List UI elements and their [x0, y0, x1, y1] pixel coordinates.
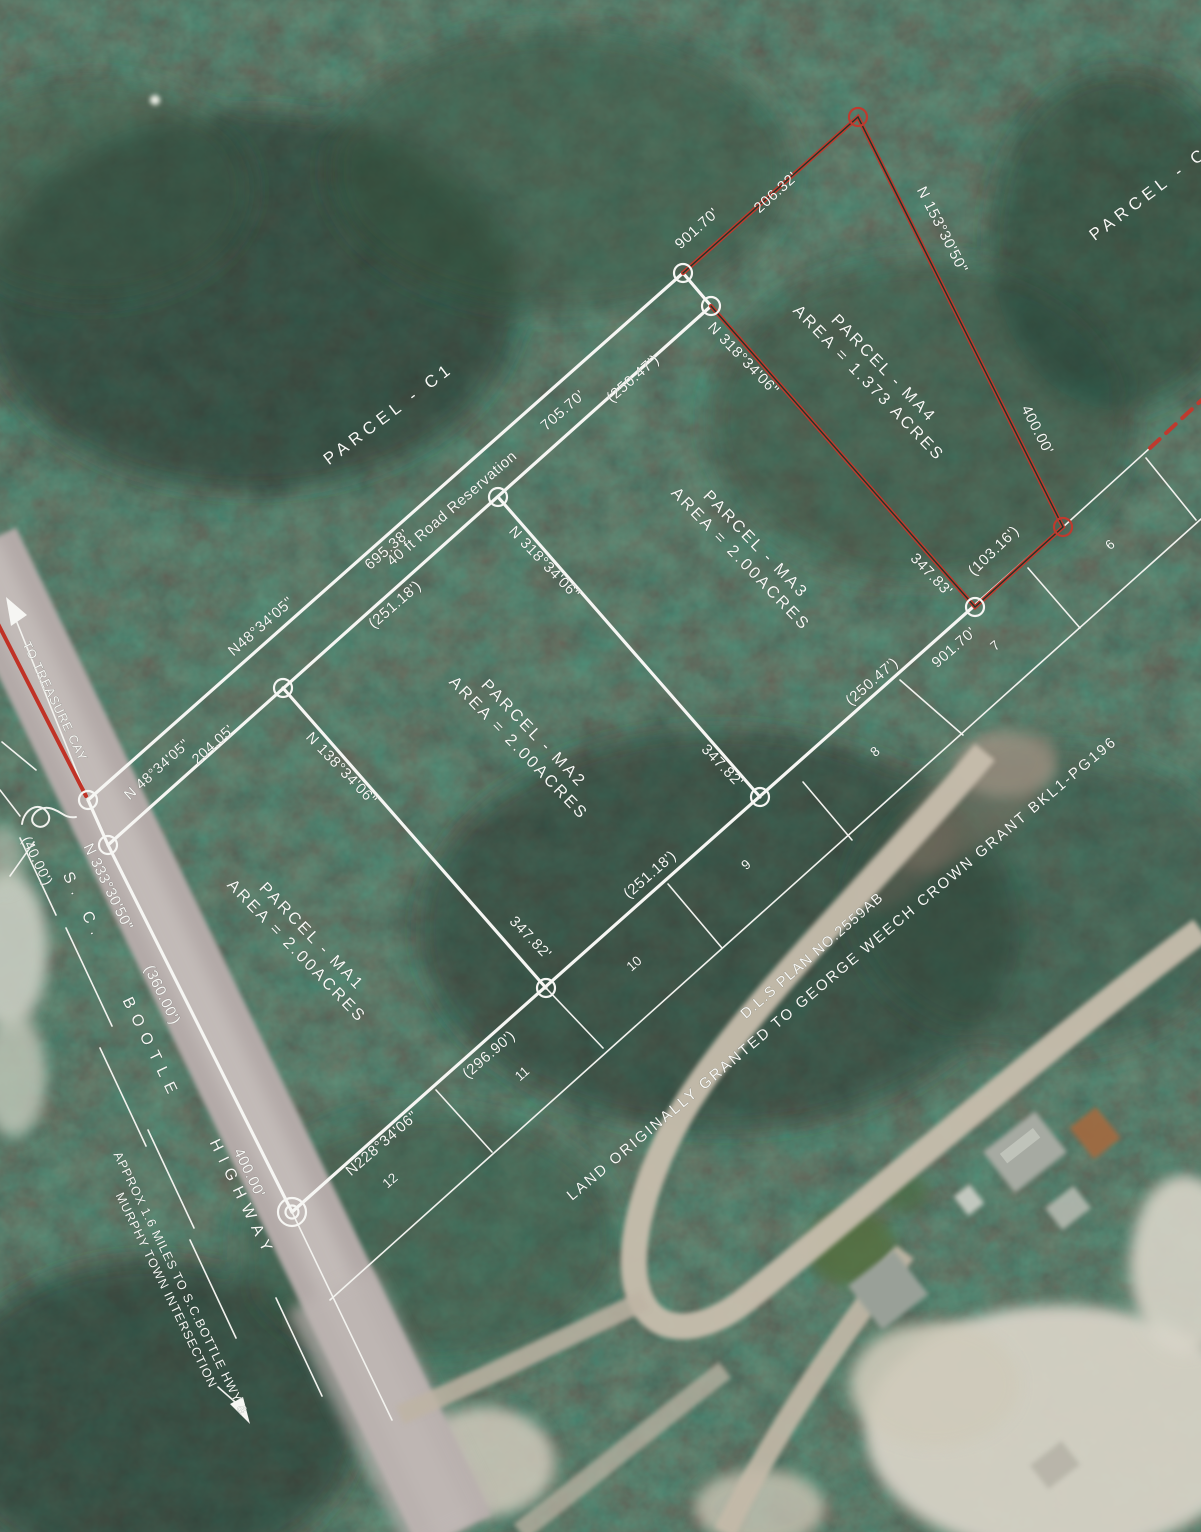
- survey-map-screenshot: PARCEL - C1 PARCEL - C 901.70' 206.32' N…: [0, 0, 1201, 1532]
- satellite-parcel-map: PARCEL - C1 PARCEL - C 901.70' 206.32' N…: [0, 0, 1201, 1532]
- sand-clearing: [850, 1323, 1020, 1447]
- white-rock-dot: [150, 95, 160, 105]
